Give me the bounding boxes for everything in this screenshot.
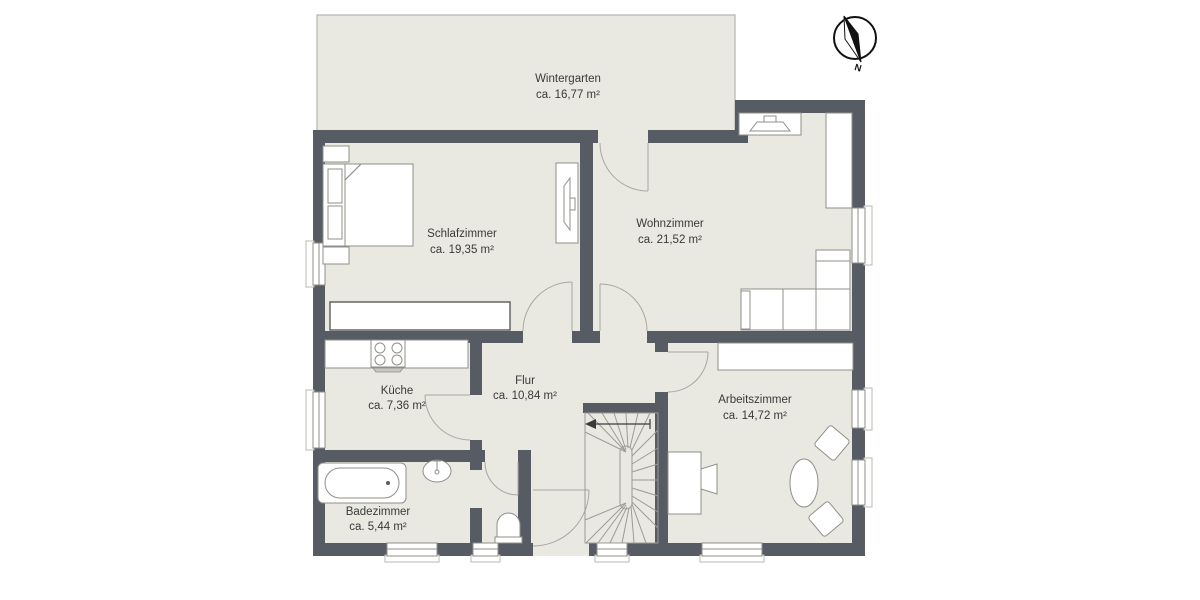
oval-table-icon: [790, 459, 818, 507]
kitchen-counter-icon: [325, 340, 468, 368]
window-icon: [385, 543, 439, 562]
room-label-wohnzimmer: Wohnzimmer: [636, 218, 704, 230]
room-label-schlafzimmer: Schlafzimmer: [427, 228, 497, 240]
window-icon: [852, 206, 872, 265]
window-icon: [306, 390, 325, 450]
nightstand-icon: [323, 247, 349, 264]
window-icon: [852, 388, 872, 430]
window-icon: [471, 543, 500, 562]
wall-segment: [852, 263, 865, 390]
room-area-wohnzimmer: ca. 21,52 m²: [638, 234, 702, 246]
wall-segment: [655, 343, 668, 352]
room-area-kueche: ca. 7,36 m²: [368, 400, 426, 412]
window-icon: [306, 241, 325, 287]
window-icon: [595, 543, 629, 562]
sink-icon: [423, 460, 451, 482]
wall-segment: [647, 331, 865, 343]
kitchen-furniture: [325, 340, 468, 372]
nightstand-icon: [323, 146, 349, 162]
wall-segment: [498, 543, 533, 556]
wall-segment: [313, 285, 325, 392]
wall-segment: [735, 100, 865, 113]
wall-segment: [852, 100, 865, 208]
wall-segment: [580, 143, 593, 331]
wall-segment: [313, 130, 598, 143]
compass-north-label: N: [853, 62, 863, 75]
wall-segment: [589, 543, 597, 556]
wardrobe-icon: [826, 113, 852, 208]
wall-segment: [437, 543, 473, 556]
window-icon: [700, 543, 764, 562]
window-icon: [852, 458, 872, 507]
tv-icon: [739, 113, 801, 135]
sideboard-icon: [330, 302, 510, 330]
wall-segment: [313, 450, 485, 462]
floor-plan: Wintergarten ca. 16,77 m² Schlafzimmer c…: [0, 0, 1200, 600]
toilet-icon: [495, 513, 522, 543]
wintergarten-floor: [317, 15, 735, 131]
wall-segment: [470, 331, 482, 395]
floor-plan-canvas: Wintergarten ca. 16,77 m² Schlafzimmer c…: [0, 0, 1200, 600]
wall-segment: [627, 543, 702, 556]
compass-rose-icon: N: [834, 16, 876, 75]
desk-icon: [668, 452, 701, 514]
wall-segment: [583, 403, 655, 413]
bathtub-icon: [318, 463, 406, 503]
room-area-badezimmer: ca. 5,44 m²: [349, 521, 407, 533]
wall-segment: [852, 428, 865, 460]
wall-segment: [648, 130, 735, 143]
wall-segment: [655, 392, 668, 543]
wall-segment: [852, 505, 865, 556]
wall-segment: [762, 543, 865, 556]
room-area-schlafzimmer: ca. 19,35 m²: [430, 244, 494, 256]
wall-segment: [470, 508, 482, 543]
room-area-arbeitszimmer: ca. 14,72 m²: [723, 410, 787, 422]
room-area-flur: ca. 10,84 m²: [493, 390, 557, 402]
room-label-flur: Flur: [515, 375, 535, 387]
room-label-badezimmer: Badezimmer: [346, 506, 411, 518]
room-label-kueche: Küche: [381, 385, 414, 397]
wall-segment: [470, 440, 482, 470]
room-label-wintergarten: Wintergarten: [535, 73, 601, 85]
wall-segment: [572, 331, 600, 343]
room-area-wintergarten: ca. 16,77 m²: [536, 89, 600, 101]
room-label-arbeitszimmer: Arbeitszimmer: [718, 394, 792, 406]
tv-icon: [556, 163, 578, 243]
bed-icon: [323, 164, 413, 246]
office-chair-icon: [701, 464, 717, 494]
sideboard-icon: [718, 343, 853, 370]
